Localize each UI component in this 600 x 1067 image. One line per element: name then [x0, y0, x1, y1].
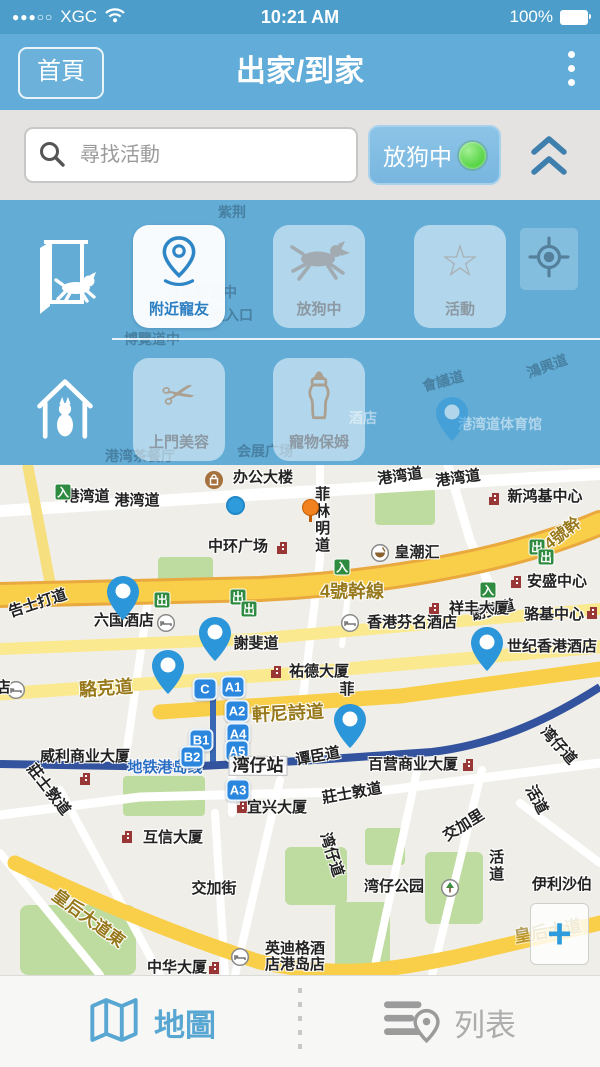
- street-label: 軒尼詩道: [252, 702, 325, 725]
- map-gate-sign: 入: [55, 484, 72, 501]
- running-dog-icon: [273, 225, 365, 298]
- street-label: 4號幹線: [320, 582, 384, 601]
- bag-poi-icon: [205, 471, 224, 490]
- poi-label: 店: [0, 680, 11, 696]
- bed-poi-icon: [231, 948, 250, 967]
- street-label: 伊利沙伯: [532, 877, 592, 893]
- bldg-poi-icon: [268, 664, 284, 680]
- metro-exit-badge: A3: [226, 779, 251, 802]
- map-icon: [88, 995, 140, 1050]
- poi-label: 新鸿基中心: [507, 489, 582, 505]
- bldg-poi-icon: [460, 757, 476, 773]
- wifi-icon: [104, 7, 126, 28]
- home-grooming-button[interactable]: ✂ 上門美容: [133, 358, 225, 461]
- overlay-map-label: 港湾道体育馆: [458, 414, 542, 434]
- street-label: 駱克道: [78, 677, 133, 700]
- toggle-label: 放狗中: [383, 138, 452, 172]
- collapse-panel-chevrons-icon[interactable]: [526, 132, 572, 185]
- poi-label: 祥丰大厦: [449, 601, 509, 617]
- bldg-poi-icon: [77, 771, 93, 787]
- map-pin[interactable]: [470, 626, 504, 672]
- panel-divider: [112, 338, 600, 340]
- search-row: 放狗中: [0, 110, 600, 200]
- locate-me-button[interactable]: [520, 228, 578, 290]
- tab-map-label: 地圖: [154, 1000, 216, 1045]
- nearby-pet-friends-button[interactable]: 附近寵友: [133, 225, 225, 328]
- pet-sitter-button[interactable]: 寵物保姆: [273, 358, 365, 461]
- dog-leaving-door-icon: [32, 236, 98, 319]
- signal-strength-icon: ●●●○○: [12, 10, 53, 24]
- bed-poi-icon: [341, 614, 360, 633]
- overlay-map-label: 紫荆: [218, 202, 246, 222]
- bowl-poi-icon: [371, 544, 390, 563]
- service-panel-overlay: 紫荆会议展览中道入口博覽道中會議道鴻興道港湾道体育馆酒店港湾茶餐厅会展广场: [0, 200, 600, 465]
- home-back-button[interactable]: 首頁: [18, 47, 104, 99]
- tab-divider: [298, 988, 302, 1056]
- orange-poi-pin: [302, 499, 319, 522]
- map-pin-behind-overlay: [435, 396, 469, 442]
- bottom-tab-bar: 地圖 列表: [0, 975, 600, 1067]
- street-label: 菲: [339, 682, 354, 698]
- service-button-label: 上門美容: [149, 431, 209, 452]
- bldg-poi-icon: [486, 491, 502, 507]
- bldg-poi-icon: [274, 540, 290, 556]
- poi-label: 骆基中心: [524, 607, 584, 623]
- poi-label: 中环广场: [208, 539, 268, 555]
- dog-in-house-icon: [32, 370, 98, 453]
- scissors-icon: ✂: [133, 358, 225, 431]
- battery-icon: [560, 10, 588, 25]
- poi-label: 皇潮汇: [394, 545, 439, 561]
- overlay-map-label: 會議道: [420, 366, 466, 396]
- search-icon: [38, 140, 66, 173]
- service-button-label: 放狗中: [296, 298, 341, 319]
- map-pin[interactable]: [151, 649, 185, 695]
- street-label: 活道: [487, 849, 503, 883]
- toggle-on-indicator: [459, 142, 486, 169]
- service-button-label: 活動: [445, 298, 475, 319]
- bldg-poi-icon: [206, 960, 222, 975]
- overlay-map-label: 鴻興道: [524, 349, 570, 382]
- poi-label: 香港芬名酒店: [367, 615, 457, 631]
- status-bar: ●●●○○ XGC 10:21 AM 100%: [0, 0, 600, 34]
- list-location-icon: [382, 997, 440, 1048]
- poi-label: 中华大厦: [147, 960, 207, 975]
- map-pin[interactable]: [106, 575, 140, 621]
- poi-label: 安盛中心: [527, 574, 587, 590]
- service-button-label: 寵物保姆: [289, 431, 349, 452]
- carrier-label: XGC: [60, 7, 97, 27]
- tab-map[interactable]: 地圖: [88, 976, 216, 1067]
- poi-label: 威利商业大厦: [40, 749, 130, 765]
- map-gate-sign: 出: [241, 601, 258, 618]
- street-label: 交加街: [191, 881, 236, 897]
- nav-header: 出家/到家 首頁: [0, 34, 600, 110]
- metro-exit-badge: A2: [225, 700, 250, 723]
- location-pin-icon: [133, 225, 225, 298]
- metro-station-label: 湾仔站: [229, 756, 288, 776]
- bldg-poi-icon: [584, 605, 600, 621]
- street-label: 世纪香港酒店: [507, 639, 597, 655]
- metro-exit-badge: B2: [180, 746, 205, 769]
- tab-list-label: 列表: [454, 1000, 516, 1045]
- overflow-menu-icon[interactable]: [568, 51, 576, 93]
- map-gate-sign: 出: [538, 549, 555, 566]
- bldg-poi-icon: [508, 574, 524, 590]
- bldg-poi-icon: [119, 829, 135, 845]
- metro-exit-badge: C: [193, 678, 218, 701]
- status-right: 100%: [510, 7, 588, 27]
- poi-label: 互信大厦: [143, 830, 203, 846]
- poi-label: 英迪格酒店港岛店: [265, 941, 325, 973]
- battery-percent: 100%: [510, 7, 553, 27]
- poi-label: 湾仔公园: [364, 879, 424, 895]
- user-location-dot: [226, 496, 245, 515]
- dog-walking-button[interactable]: 放狗中: [273, 225, 365, 328]
- tab-list[interactable]: 列表: [382, 976, 516, 1067]
- map-gate-sign: 入: [480, 582, 497, 599]
- baby-bottle-icon: [273, 358, 365, 431]
- street-label: 港湾道: [114, 493, 159, 509]
- clock: 10:21 AM: [261, 7, 339, 28]
- app-screen: ●●●○○ XGC 10:21 AM 100% 出家/到家 首頁: [0, 0, 600, 1067]
- activities-button[interactable]: ☆ 活動: [414, 225, 506, 328]
- poi-label: 祐德大厦: [289, 664, 349, 680]
- map-pin[interactable]: [333, 703, 367, 749]
- star-icon: ☆: [414, 225, 506, 298]
- service-button-label: 附近寵友: [149, 298, 209, 319]
- dog-walking-toggle-button[interactable]: 放狗中: [368, 125, 501, 185]
- status-left: ●●●○○ XGC: [12, 7, 126, 28]
- map-gate-sign: 出: [154, 592, 171, 609]
- poi-label: 办公大楼: [233, 470, 293, 486]
- metro-exit-badge: A1: [221, 676, 246, 699]
- street-label: 謝斐道: [233, 636, 278, 652]
- poi-label: 百营商业大厦: [368, 757, 458, 773]
- map-zoom-in-button[interactable]: +: [530, 903, 589, 965]
- locate-crosshair-icon: [528, 236, 570, 283]
- tree-poi-icon: [441, 879, 460, 898]
- map-canvas[interactable]: + 港湾道港湾道港湾道港湾道菲林明道告士打道4號幹線4號幹謝斐道谢斐道駱克道軒尼…: [0, 465, 600, 975]
- poi-label: 宜兴大厦: [247, 800, 307, 816]
- search-input[interactable]: [24, 127, 358, 183]
- map-pin[interactable]: [198, 616, 232, 662]
- bed-poi-icon: [157, 614, 176, 633]
- map-gate-sign: 入: [334, 559, 351, 576]
